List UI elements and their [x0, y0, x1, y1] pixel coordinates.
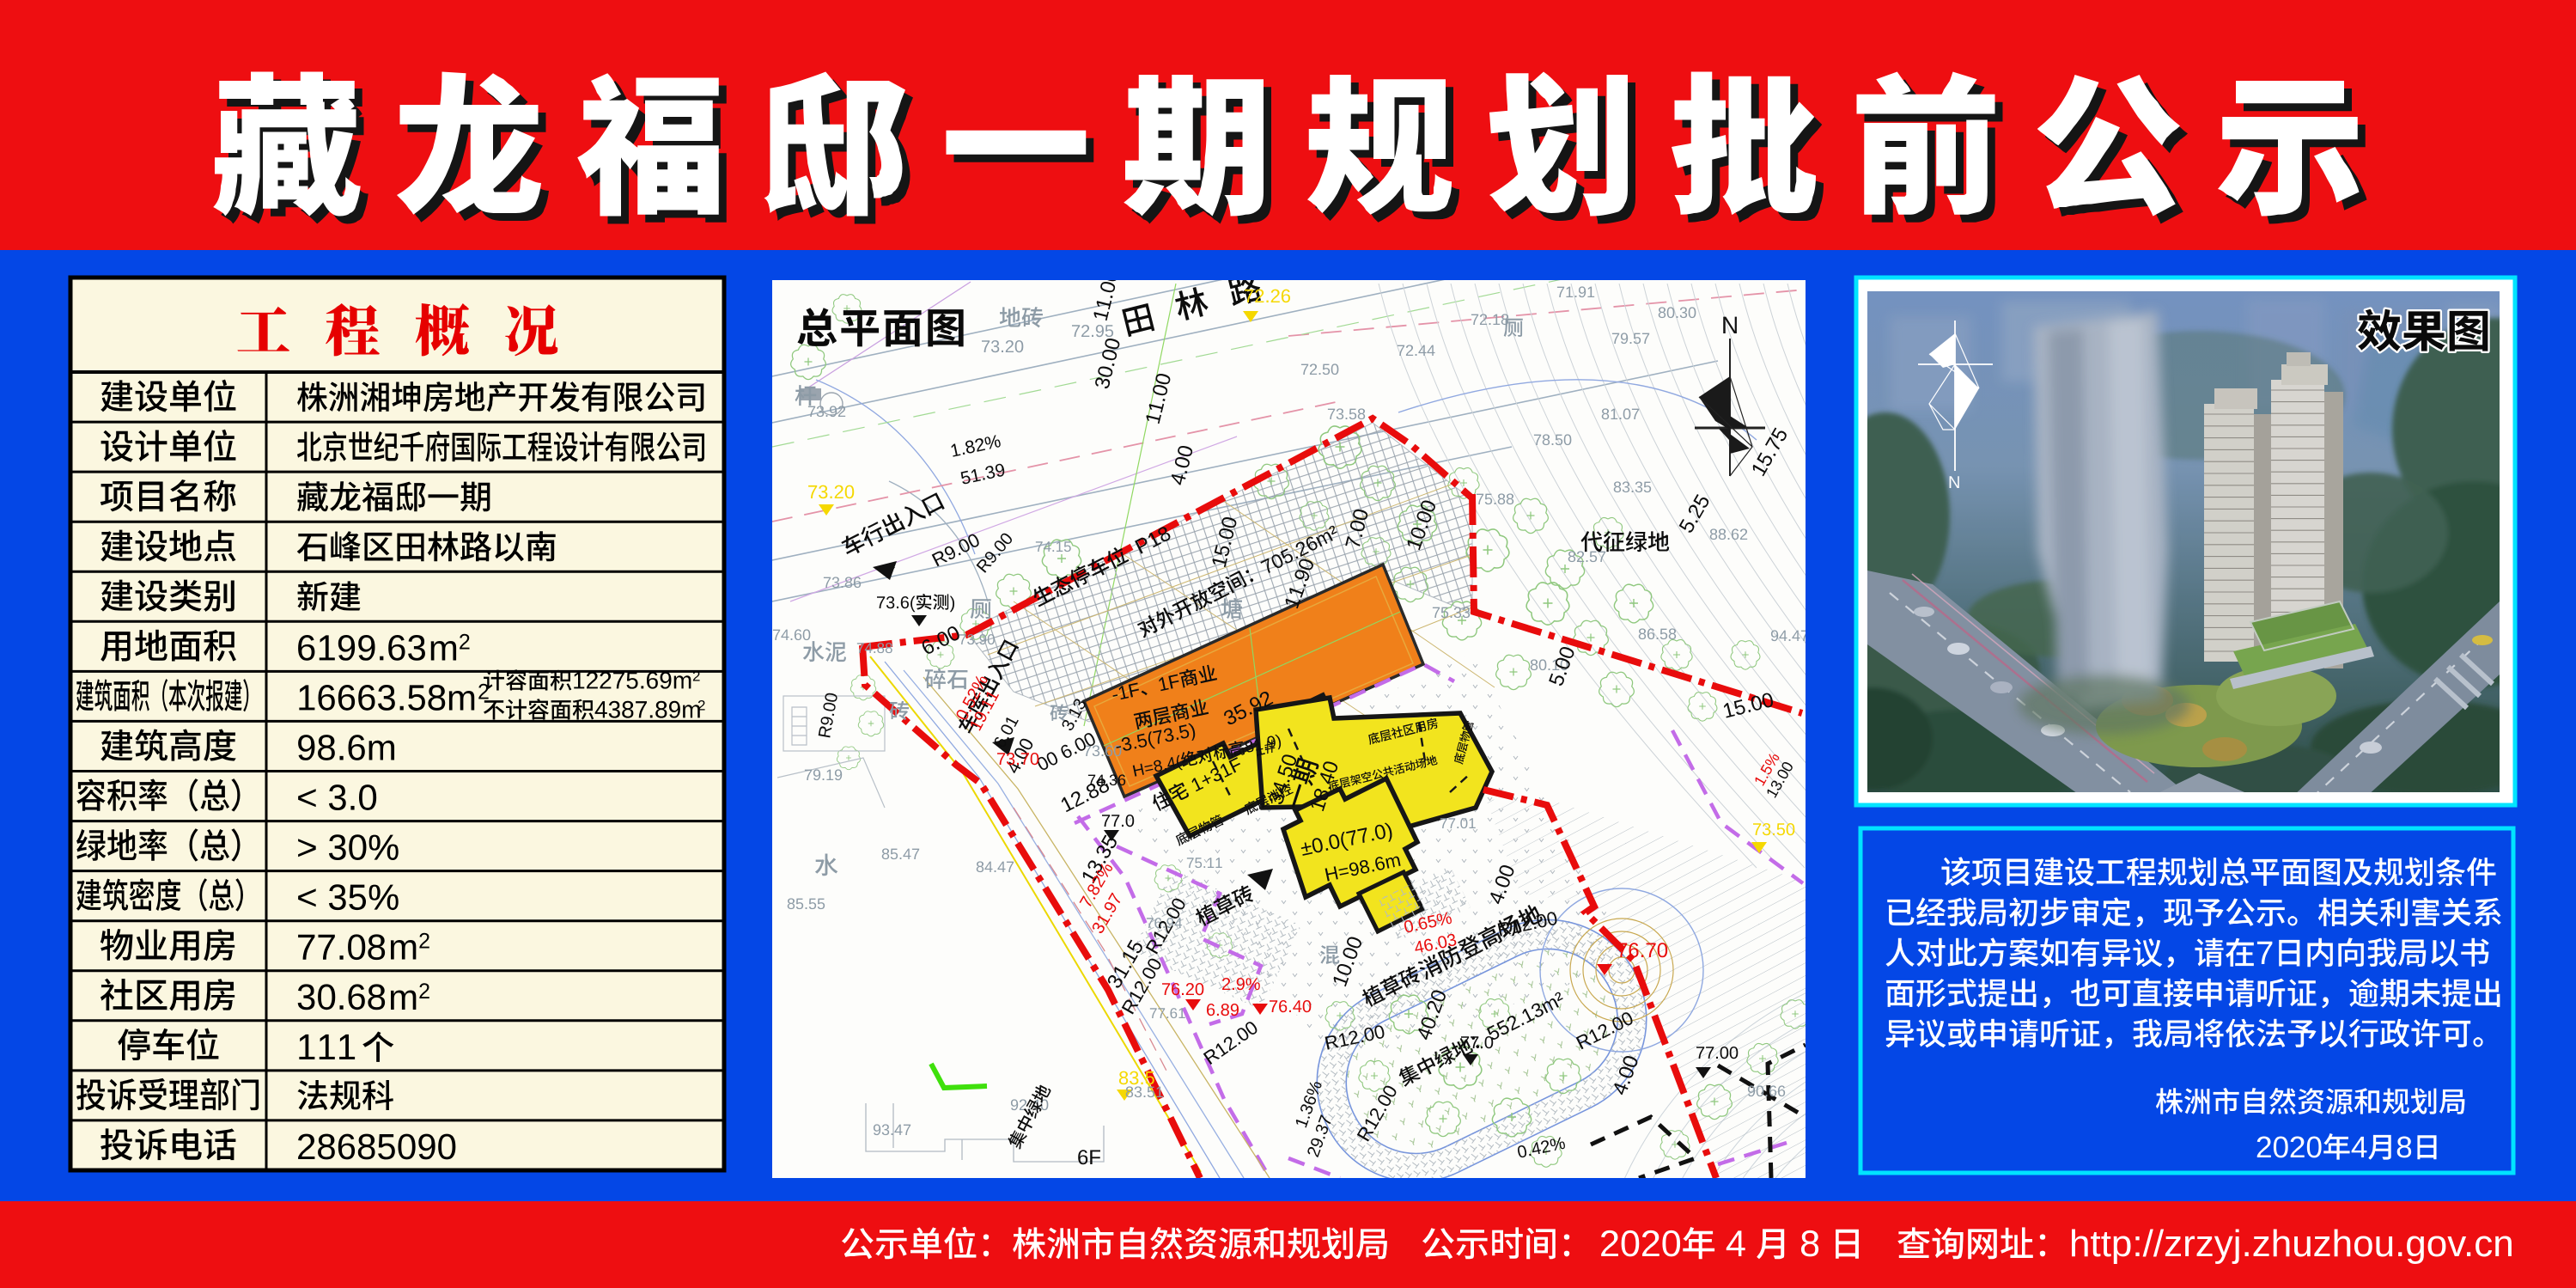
svg-text:2: 2 [418, 980, 430, 1004]
svg-text:2: 2 [418, 930, 430, 954]
svg-text:m: m [447, 677, 477, 717]
svg-text:2: 2 [697, 697, 705, 713]
svg-text:http://zrzyj.zhuzhou.gov.cn: http://zrzyj.zhuzhou.gov.cn [2069, 1223, 2514, 1265]
svg-text:m: m [388, 927, 418, 968]
svg-text:2: 2 [692, 668, 700, 684]
svg-text:m: m [429, 627, 459, 668]
svg-text:2: 2 [459, 630, 471, 654]
svg-text:m: m [388, 977, 418, 1017]
